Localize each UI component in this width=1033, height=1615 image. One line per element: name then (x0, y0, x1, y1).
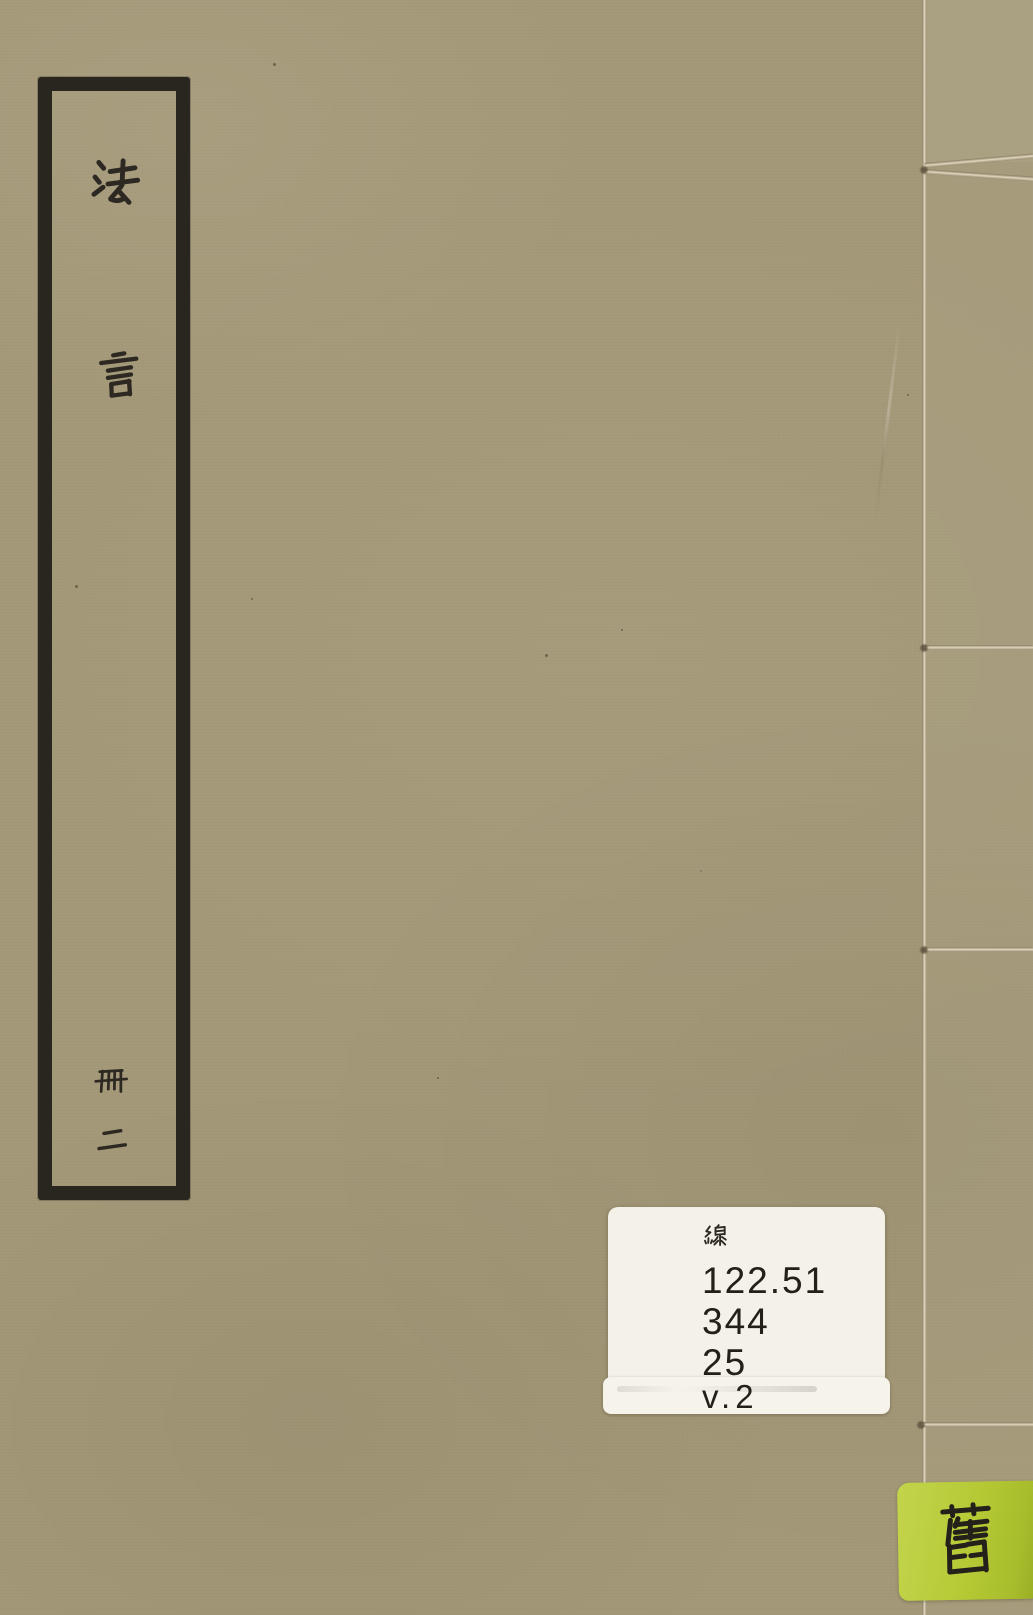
volume-char-ce-glyph (94, 1054, 128, 1112)
binding-thread-vertical (922, 0, 927, 1615)
paper-speck (75, 585, 78, 588)
volume-char-ce: 冊 (94, 1054, 128, 1112)
stitch-hole (919, 643, 929, 653)
title-char-yan: 言 (94, 338, 142, 412)
paper-speck (251, 598, 253, 600)
paper-speck (545, 654, 548, 657)
call-number-label: 線 122.51 344 25 (608, 1207, 885, 1383)
binding-stitch-middle (924, 645, 1033, 650)
stitch-hole (916, 1420, 926, 1430)
binding-stitch-lower (924, 947, 1033, 952)
paper-speck (907, 394, 909, 396)
paper-speck (273, 63, 276, 66)
stitch-hole (919, 945, 929, 955)
paper-speck (621, 629, 623, 631)
call-label-char-xian-glyph (702, 1223, 729, 1252)
paper-speck (700, 870, 702, 872)
paper-speck (437, 1077, 439, 1079)
call-label-char-xian: 線 (702, 1223, 729, 1252)
cover-wrinkle (874, 319, 902, 523)
condition-char-jiu: 舊 (927, 1491, 1005, 1588)
book-cover: 法 言 冊 二 (0, 0, 1033, 1615)
condition-char-jiu-glyph (927, 1491, 1005, 1588)
title-char-yan-glyph (94, 338, 142, 412)
title-char-fa-glyph (88, 146, 142, 222)
binding-stitch-bottom (919, 1422, 1033, 1427)
volume-sticker-text: v.2 (702, 1378, 759, 1415)
call-number-line-1: 122.51 (702, 1260, 827, 1301)
call-number-lines: 122.51 344 25 (702, 1260, 827, 1383)
title-slip-frame (38, 77, 190, 1200)
stitch-hole (919, 165, 929, 175)
call-number-line-2: 344 (702, 1301, 827, 1342)
volume-sticker: v.2 (603, 1377, 890, 1414)
spine-strip (927, 0, 1033, 1615)
title-char-fa: 法 (88, 146, 142, 222)
condition-sticker: 舊 (897, 1481, 1033, 1601)
volume-char-er-glyph (93, 1119, 131, 1163)
volume-char-er: 二 (93, 1119, 131, 1163)
spine-top-corner (927, 0, 1033, 162)
